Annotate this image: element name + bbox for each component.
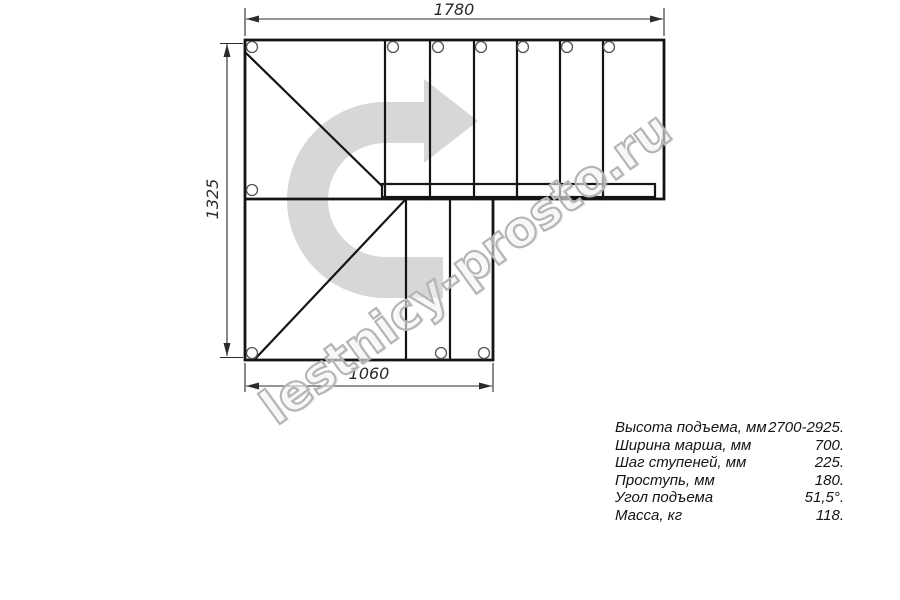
spec-table: Высота подъема, мм 2700-2925. Ширина мар… (615, 419, 844, 525)
bolt-hole (388, 42, 399, 53)
bolt-hole (604, 42, 615, 53)
spec-value: 51,5°. (805, 489, 844, 507)
spec-value: 700. (815, 437, 844, 455)
spec-row-step-pitch: Шаг ступеней, мм 225. (615, 454, 844, 472)
stringer-board (382, 184, 655, 197)
bolt-hole (247, 348, 258, 359)
spec-value: 225. (815, 454, 844, 472)
spec-label: Масса, кг (615, 507, 682, 525)
spec-value: 2700-2925. (768, 419, 844, 437)
dimension-top: 1780 (245, 0, 664, 36)
spec-label: Ширина марша, мм (615, 437, 751, 455)
dimension-bottom-value: 1060 (349, 364, 390, 383)
staircase-outline (245, 40, 664, 360)
spec-value: 180. (815, 472, 844, 490)
staircase-structure (245, 40, 664, 360)
canvas: 1780 1325 1060 Высота подъема, мм 2700-2… (0, 0, 900, 600)
dimension-left-value: 1325 (203, 179, 222, 220)
bolt-hole (476, 42, 487, 53)
bolt-hole (518, 42, 529, 53)
dimension-bottom: 1060 (245, 363, 493, 392)
spec-value: 118. (816, 507, 844, 525)
dimension-left: 1325 (203, 44, 243, 358)
spec-row-height: Высота подъема, мм 2700-2925. (615, 419, 844, 437)
spec-row-flight-width: Ширина марша, мм 700. (615, 437, 844, 455)
bolt-hole (479, 348, 490, 359)
spec-row-angle: Угол подъема 51,5°. (615, 489, 844, 507)
spec-row-mass: Масса, кг 118. (615, 507, 844, 525)
bolt-hole (247, 185, 258, 196)
spec-label: Шаг ступеней, мм (615, 454, 746, 472)
bolt-hole (247, 42, 258, 53)
bolt-hole (433, 42, 444, 53)
dimension-top-value: 1780 (434, 0, 475, 19)
spec-row-tread: Проступь, мм 180. (615, 472, 844, 490)
spec-label: Проступь, мм (615, 472, 715, 490)
bolt-hole (436, 348, 447, 359)
spec-label: Высота подъема, мм (615, 419, 767, 437)
spec-label: Угол подъема (615, 489, 713, 507)
bolt-hole (562, 42, 573, 53)
